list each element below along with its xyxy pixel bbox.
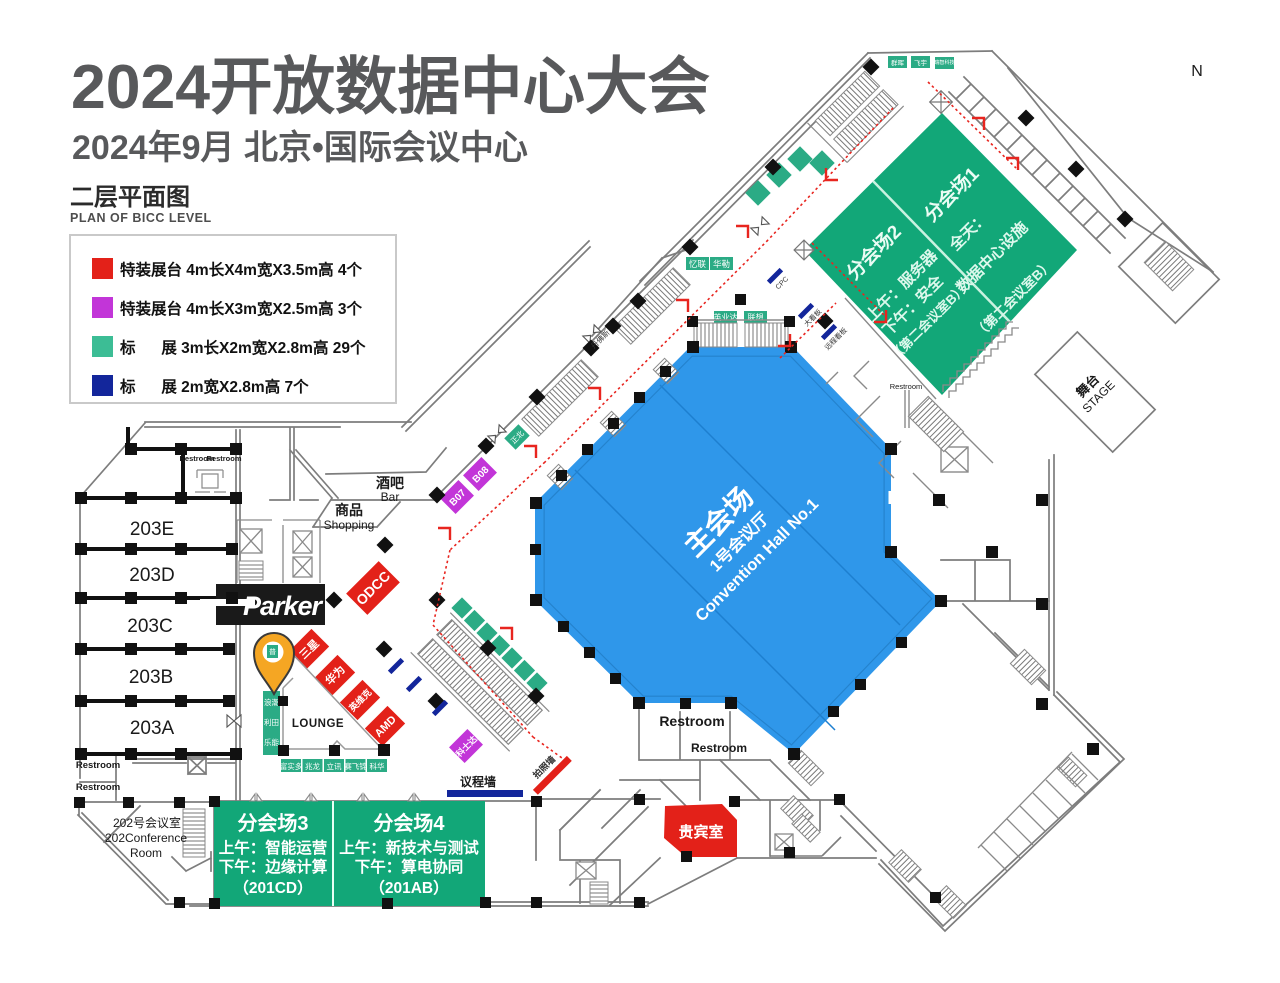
svg-text:Restroom: Restroom (691, 741, 747, 755)
svg-text:203A: 203A (130, 718, 175, 739)
svg-text:分会场4: 分会场4 (373, 811, 445, 835)
svg-text:议程墙: 议程墙 (460, 774, 496, 789)
svg-text:上午：智能运营: 上午：智能运营 (219, 838, 328, 857)
svg-text:Restroom: Restroom (890, 382, 923, 391)
svg-text:特装展台 4m长X3m宽X2.5m高 3个: 特装展台 4m长X3m宽X2.5m高 3个 (120, 299, 363, 318)
svg-text:（201CD）: （201CD） (233, 879, 312, 897)
svg-text:Restroom: Restroom (206, 454, 241, 463)
svg-text:Restroom: Restroom (76, 760, 120, 771)
svg-text:下午：算电协同: 下午：算电协同 (355, 857, 464, 876)
svg-text:普: 普 (269, 647, 276, 656)
svg-text:科华: 科华 (370, 761, 385, 771)
svg-text:利田: 利田 (264, 717, 279, 727)
svg-text:兆龙: 兆龙 (305, 761, 320, 771)
svg-text:2024年9月 北京•国际会议中心: 2024年9月 北京•国际会议中心 (72, 129, 528, 167)
svg-text:商品: 商品 (335, 502, 363, 518)
svg-text:下午：边缘计算: 下午：边缘计算 (219, 857, 328, 876)
svg-text:Restroom: Restroom (659, 713, 724, 729)
svg-text:标 展 3m长X2m宽X2.8m高 29个: 标 展 3m长X2m宽X2.8m高 29个 (119, 338, 366, 357)
svg-text:202Conference: 202Conference (105, 831, 187, 845)
svg-text:Room: Room (130, 846, 162, 860)
svg-text:标 展 2m宽X2.8m高 7个: 标 展 2m宽X2.8m高 7个 (119, 377, 309, 396)
svg-text:飞宇: 飞宇 (914, 58, 928, 67)
svg-text:Bar: Bar (381, 490, 400, 504)
svg-text:202号会议室: 202号会议室 (113, 815, 181, 830)
svg-text:忆联: 忆联 (689, 259, 707, 269)
svg-text:Parker: Parker (243, 591, 324, 621)
svg-text:特装展台 4m长X4m宽X3.5m高 4个: 特装展台 4m长X4m宽X3.5m高 4个 (120, 260, 363, 279)
svg-text:2024开放数据中心大会: 2024开放数据中心大会 (71, 52, 711, 122)
svg-text:203E: 203E (130, 519, 174, 540)
svg-text:富实多: 富实多 (280, 761, 303, 771)
svg-text:PLAN OF BICC LEVEL: PLAN OF BICC LEVEL (70, 211, 212, 225)
svg-text:浪潮: 浪潮 (264, 697, 279, 707)
svg-text:N: N (1191, 63, 1203, 80)
svg-text:二层平面图: 二层平面图 (70, 184, 190, 211)
svg-text:酒吧: 酒吧 (376, 475, 404, 491)
svg-text:Restroom: Restroom (76, 782, 120, 793)
svg-text:分会场3: 分会场3 (237, 811, 308, 835)
svg-text:乐能: 乐能 (264, 737, 279, 747)
svg-text:203B: 203B (129, 667, 173, 688)
svg-text:立讯: 立讯 (327, 761, 342, 771)
svg-text:瑞智科技: 瑞智科技 (934, 59, 954, 66)
svg-text:LOUNGE: LOUNGE (292, 718, 344, 730)
svg-text:贵宾室: 贵宾室 (678, 823, 723, 841)
svg-text:203C: 203C (127, 616, 172, 637)
svg-text:华勒: 华勒 (713, 259, 730, 269)
svg-text:赛飞锦: 赛飞锦 (344, 761, 367, 771)
svg-text:203D: 203D (129, 565, 174, 586)
svg-text:群晖: 群晖 (891, 58, 905, 67)
svg-text:上午：新技术与测试: 上午：新技术与测试 (339, 838, 479, 857)
svg-text:Shopping: Shopping (324, 518, 375, 532)
svg-text:（201AB）: （201AB） (369, 879, 448, 897)
